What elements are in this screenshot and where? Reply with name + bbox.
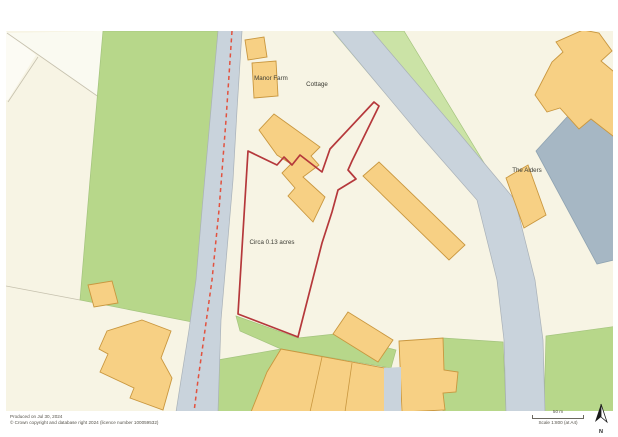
north-needle-icon <box>594 403 608 425</box>
scale-text: Scale 1:800 (at A4) <box>529 420 587 426</box>
building-small-west <box>88 281 118 307</box>
green-corner-southeast <box>544 326 613 411</box>
north-arrow: N <box>592 403 610 435</box>
label-plot-area: Circa 0.13 acres <box>249 239 294 246</box>
copyright-text: © Crown copyright and database right 202… <box>10 420 158 426</box>
scale-bar: 50 m Scale 1:800 (at A4) <box>529 409 587 425</box>
label-manor-farm: Manor Farm <box>254 75 288 82</box>
building-outbuilding-north <box>245 37 267 60</box>
plan-page: Manor Farm Cottage Circa 0.13 acres The … <box>0 0 618 437</box>
footer-fine-print: Produced on Jul 30, 2024 © Crown copyrig… <box>10 414 158 426</box>
north-label: N <box>592 430 610 435</box>
driveway-stub <box>384 367 401 411</box>
site-plan-map: Manor Farm Cottage Circa 0.13 acres The … <box>6 31 613 411</box>
label-cottage: Cottage <box>306 81 328 88</box>
label-the-alders: The Alders <box>512 167 542 174</box>
scale-bar-line <box>532 415 584 419</box>
